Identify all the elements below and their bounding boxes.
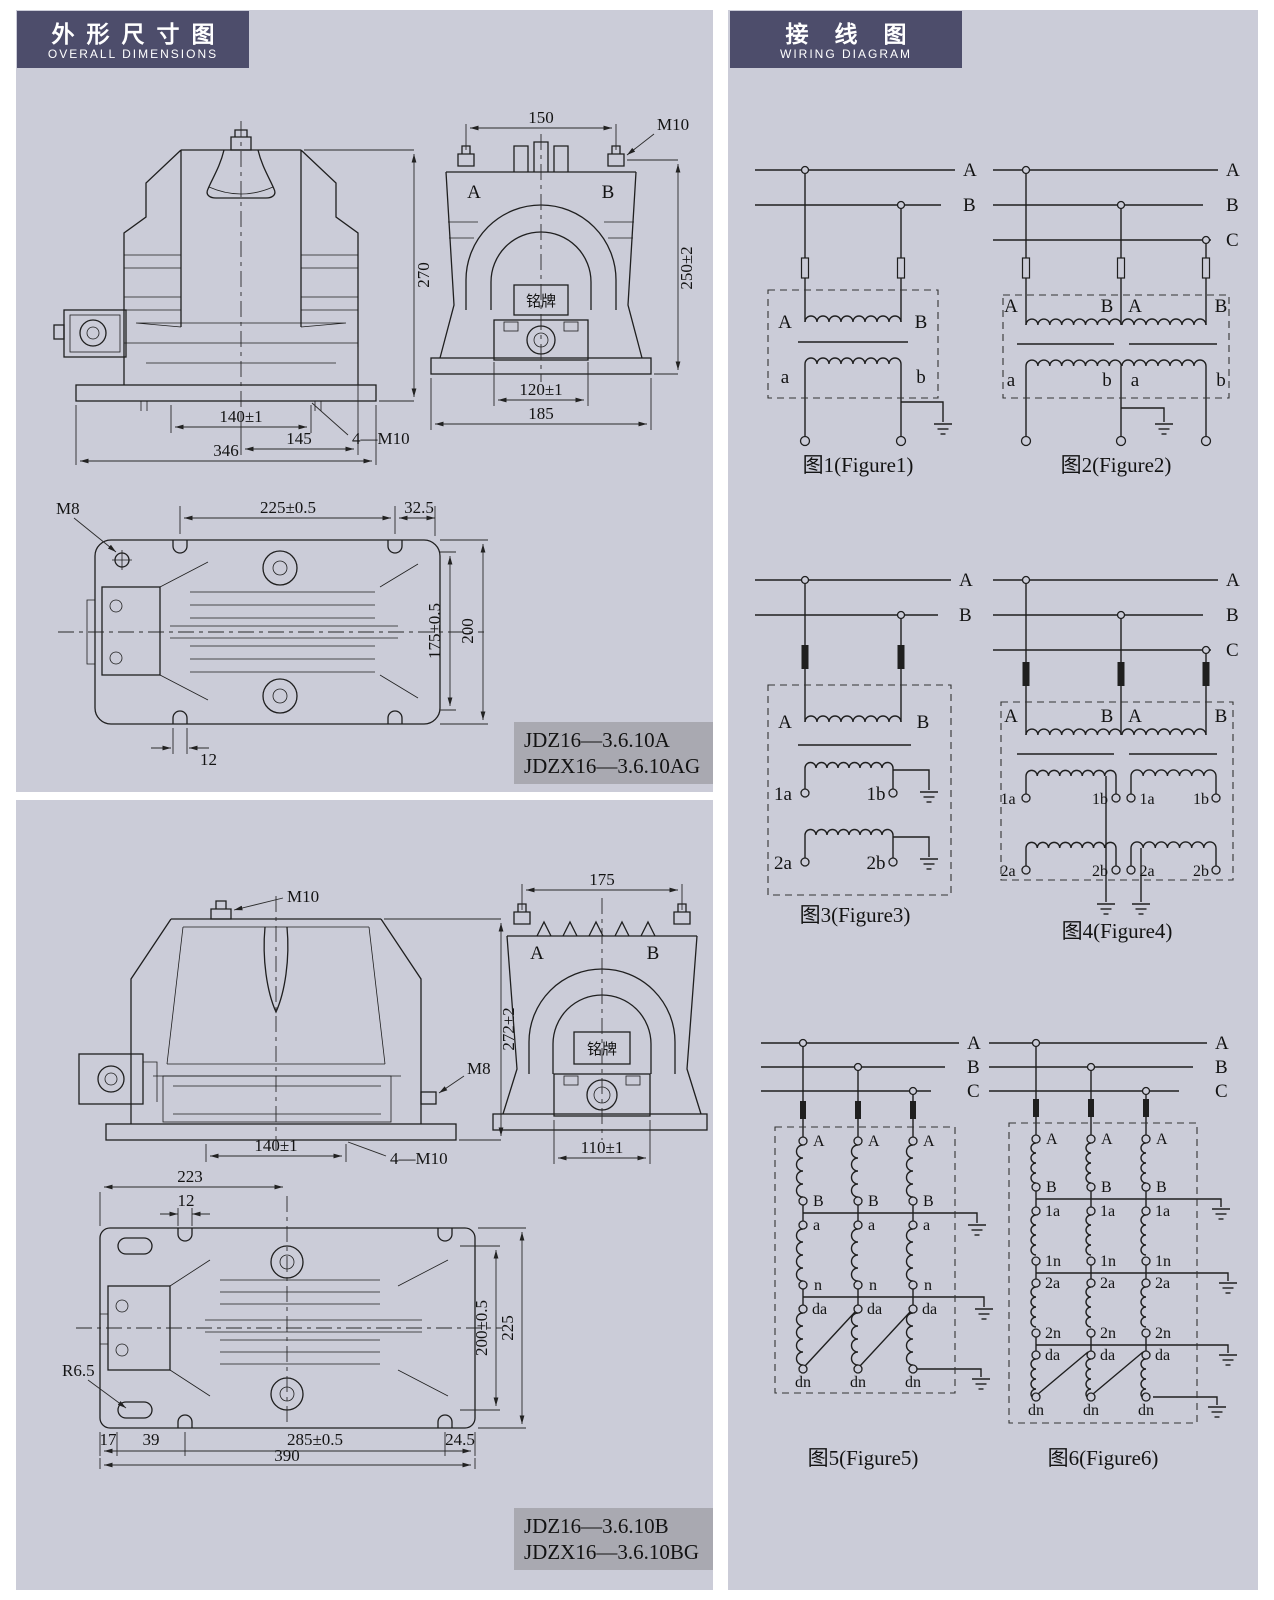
fig1-bus-b: B [963, 195, 976, 216]
fig5-c1-dn: dn [795, 1374, 811, 1391]
fig2-bus-c: C [1226, 230, 1239, 251]
fig6-c2-dn: dn [1083, 1402, 1099, 1419]
fig6-c3-B: B [1156, 1179, 1167, 1196]
terminal-b-label: B [647, 943, 660, 964]
fig4-t1-sec2-b: 2b [1092, 863, 1108, 880]
fig5-c2-da: da [867, 1301, 882, 1318]
fig6-bus-a: A [1215, 1033, 1229, 1054]
dim-bt-223: 223 [177, 1168, 203, 1186]
b-front-view-drawing: M10 M8 272±2 140±1 4—M10 [71, 874, 521, 1169]
b-side-body [493, 904, 707, 1130]
fig5-caption: 图5(Figure5) [808, 1446, 919, 1470]
header-title-en: WIRING DIAGRAM [730, 47, 962, 61]
fig6-bus-b: B [1215, 1057, 1228, 1078]
dim-as-250: 250±2 [677, 246, 696, 289]
dim-bf-4m10: 4—M10 [390, 1149, 448, 1168]
fig6-c1-2a: 2a [1045, 1275, 1060, 1292]
fig5-c2-B: B [868, 1193, 879, 1210]
fig5-c3-A: A [923, 1133, 935, 1150]
header-title-zh: 外形尺寸图 [17, 15, 249, 49]
fig2-caption: 图2(Figure2) [1061, 453, 1172, 477]
dim-bs-175: 175 [589, 874, 615, 889]
wiring-diagram-header: 接线图 WIRING DIAGRAM [730, 11, 962, 68]
terminal-a-label: A [467, 182, 481, 203]
fig4-t1-sec1-a: 1a [1000, 791, 1015, 808]
fig6-c1-2n: 2n [1045, 1325, 1061, 1342]
fig1-primary-a: A [778, 312, 792, 333]
nameplate-label: 铭牌 [587, 1041, 617, 1058]
figure6-wiring: A B C A B 1a 1n 2a 2n da dn A B 1a 1n 2a… [981, 1015, 1253, 1485]
fig6-c1-da: da [1045, 1347, 1060, 1364]
fig6-c1-dn: dn [1028, 1402, 1044, 1419]
fig4-t2-sec1-a: 1a [1139, 791, 1154, 808]
overall-dimensions-header: 外形尺寸图 OVERALL DIMENSIONS [17, 11, 249, 68]
fig6-caption: 图6(Figure6) [1048, 1446, 1159, 1470]
fig6-bus-c: C [1215, 1081, 1228, 1102]
fig6-winding-labels: A B 1a 1n 2a 2n da dn A B 1a 1n 2a 2n da… [1028, 1131, 1171, 1419]
dim-at-m8: M8 [56, 499, 80, 518]
fig6-c2-1a: 1a [1100, 1203, 1115, 1220]
fig5-c3-da: da [922, 1301, 937, 1318]
fig4-t2-primary-b: B [1215, 706, 1228, 727]
fig4-t1-sec1-b: 1b [1092, 791, 1108, 808]
fig6-c3-dn: dn [1138, 1402, 1154, 1419]
fig4-caption: 图4(Figure4) [1062, 919, 1173, 943]
fig4-circuit [993, 580, 1218, 902]
header-title-en: OVERALL DIMENSIONS [17, 47, 249, 61]
dim-bf-140: 140±1 [254, 1136, 297, 1155]
dim-at-225: 225±0.5 [260, 498, 316, 517]
fig6-c1-1n: 1n [1045, 1253, 1061, 1270]
fig2-t1-primary-b: B [1101, 296, 1114, 317]
fig3-primary-b: B [917, 712, 930, 733]
fig6-c3-2n: 2n [1155, 1325, 1171, 1342]
dim-as-150: 150 [528, 110, 554, 127]
fig4-bus-b: B [1226, 605, 1239, 626]
figure1-wiring: A B A B a b 图1(Figure1) [743, 140, 993, 490]
terminal-b-label: B [602, 182, 615, 203]
figure3-wiring: A B A B 1a 1b 2a 2b 图3(Figure3) [743, 550, 993, 945]
dim-at-200: 200 [458, 618, 477, 644]
figure4-wiring: A B C A B A B 1a 1b 1a 1b 2a 2b 2a 2b 图4… [981, 550, 1253, 950]
fig5-c3-dn: dn [905, 1374, 921, 1391]
fig3-sec1-b: 1b [867, 784, 886, 805]
fig5-bus-a: A [967, 1033, 981, 1054]
fig6-c2-2a: 2a [1100, 1275, 1115, 1292]
b-front-dimension-lines [206, 898, 501, 1162]
fig3-bus-a: A [959, 570, 973, 591]
model-a-line1: JDZ16—3.6.10A [524, 727, 707, 753]
fig2-t2-secondary-a: a [1131, 370, 1140, 391]
fig6-c3-da: da [1155, 1347, 1170, 1364]
fig5-c2-a: a [868, 1217, 875, 1234]
model-box-b: JDZ16—3.6.10B JDZX16—3.6.10BG [514, 1508, 713, 1570]
fig4-t2-sec2-a: 2a [1139, 863, 1154, 880]
fig4-t2-sec1-b: 1b [1193, 791, 1209, 808]
fig4-bus-a: A [1226, 570, 1240, 591]
catalog-page: 外形尺寸图 OVERALL DIMENSIONS [0, 0, 1274, 1600]
wiring-diagram-panel: 接线图 WIRING DIAGRAM A B A B a b 图1(Figure… [728, 10, 1258, 1590]
model-a-line2: JDZX16—3.6.10AG [524, 753, 707, 779]
fig6-c1-A: A [1046, 1131, 1058, 1148]
fig5-c2-dn: dn [850, 1374, 866, 1391]
model-box-a: JDZ16—3.6.10A JDZX16—3.6.10AG [514, 722, 713, 784]
figure5-wiring: A B C A B a n da dn A B a n da dn A B a … [743, 1015, 993, 1480]
fig1-primary-b: B [915, 312, 928, 333]
fig6-c2-1n: 1n [1100, 1253, 1116, 1270]
fig4-t1-sec2-a: 2a [1000, 863, 1015, 880]
fig4-bus-c: C [1226, 640, 1239, 661]
dim-as-185: 185 [528, 404, 554, 423]
dim-a-346: 346 [213, 441, 239, 460]
fig6-c3-1a: 1a [1155, 1203, 1170, 1220]
fig6-c3-2a: 2a [1155, 1275, 1170, 1292]
fig5-c1-a: a [813, 1217, 820, 1234]
figure2-wiring: A B C A B A B a b a b 图2(Figure2) [981, 140, 1253, 490]
fig3-caption: 图3(Figure3) [800, 903, 911, 927]
model-b-line1: JDZ16—3.6.10B [524, 1513, 707, 1539]
fig2-t2-primary-b: B [1215, 296, 1228, 317]
fig5-c2-A: A [868, 1133, 880, 1150]
a-side-view-drawing: 150 M10 A B 铭牌 250±2 120±1 185 [426, 110, 706, 455]
fig5-c3-B: B [923, 1193, 934, 1210]
fig3-sec1-a: 1a [774, 784, 793, 805]
dim-a-hole-span: 140±1 [219, 407, 262, 426]
model-b-line2: JDZX16—3.6.10BG [524, 1539, 707, 1565]
fig5-c1-da: da [812, 1301, 827, 1318]
dim-bt-225: 225 [498, 1315, 517, 1341]
fig3-primary-a: A [778, 712, 792, 733]
fig5-c1-B: B [813, 1193, 824, 1210]
fig5-c3-n: n [924, 1277, 932, 1294]
fig5-circuit [761, 1043, 984, 1377]
fig1-caption: 图1(Figure1) [803, 453, 914, 477]
dim-bs-110: 110±1 [581, 1138, 624, 1157]
header-title-zh: 接线图 [730, 15, 962, 49]
dim-at-175: 175±0.5 [425, 603, 444, 659]
fig2-bus-a: A [1226, 160, 1240, 181]
fig4-t1-primary-a: A [1004, 706, 1018, 727]
b-front-body [79, 901, 456, 1140]
fig3-sec2-a: 2a [774, 853, 793, 874]
fig1-circuit [755, 170, 955, 436]
dim-as-120: 120±1 [519, 380, 562, 399]
overall-dimensions-panel-b: M10 M8 272±2 140±1 4—M10 175 A B 铭牌 [16, 800, 713, 1590]
fig2-t2-primary-a: A [1128, 296, 1142, 317]
fig6-c3-A: A [1156, 1131, 1168, 1148]
fig6-c1-B: B [1046, 1179, 1057, 1196]
fig1-secondary-b: b [916, 367, 926, 388]
fig3-sec2-b: 2b [867, 853, 886, 874]
terminal-a-label: A [530, 943, 544, 964]
fig6-c2-2n: 2n [1100, 1325, 1116, 1342]
dim-a-145: 145 [286, 429, 312, 448]
dim-at-12: 12 [200, 750, 217, 769]
dim-bt-245: 24.5 [445, 1430, 475, 1449]
dim-bt-r65: R6.5 [62, 1361, 95, 1380]
fig5-c2-n: n [869, 1277, 877, 1294]
dim-as-m10: M10 [657, 115, 689, 134]
dim-at-325: 32.5 [404, 498, 434, 517]
fig5-c1-A: A [813, 1133, 825, 1150]
fig2-bus-b: B [1226, 195, 1239, 216]
dim-bt-200: 200±0.5 [472, 1300, 491, 1356]
fig4-t2-primary-a: A [1128, 706, 1142, 727]
dim-bf-m10: M10 [287, 887, 319, 906]
fig5-bus-b: B [967, 1057, 980, 1078]
fig6-c1-1a: 1a [1045, 1203, 1060, 1220]
fig5-winding-labels: A B a n da dn A B a n da dn A B a n da d… [795, 1133, 937, 1391]
fig1-bus-a: A [963, 160, 977, 181]
fig2-t1-primary-a: A [1004, 296, 1018, 317]
dim-bt-17: 17 [100, 1430, 118, 1449]
fig2-t2-secondary-b: b [1216, 370, 1226, 391]
b-top-view-drawing: 223 12 R6.5 200±0.5 225 17 39 285±0.5 24… [60, 1168, 540, 1472]
fig5-c3-a: a [923, 1217, 930, 1234]
fig3-bus-b: B [959, 605, 972, 626]
overall-dimensions-panel-a: 外形尺寸图 OVERALL DIMENSIONS [16, 10, 713, 792]
fig2-t1-secondary-a: a [1007, 370, 1016, 391]
a-front-view-drawing: 270 140±1 4—M10 145 346 [46, 105, 446, 465]
nameplate-label: 铭牌 [526, 293, 556, 310]
fig6-c2-A: A [1101, 1131, 1113, 1148]
fig5-bus-c: C [967, 1081, 980, 1102]
fig4-t2-sec2-b: 2b [1193, 863, 1209, 880]
a-front-body [54, 130, 376, 411]
dim-bt-390: 390 [274, 1446, 300, 1465]
fig2-t1-secondary-b: b [1102, 370, 1112, 391]
dim-bt-12: 12 [178, 1191, 195, 1210]
dim-a-bolt-callout: 4—M10 [352, 429, 410, 448]
a-top-view-drawing: M8 225±0.5 32.5 175±0.5 200 12 [40, 492, 500, 770]
fig6-c2-da: da [1100, 1347, 1115, 1364]
fig6-c3-1n: 1n [1155, 1253, 1171, 1270]
b-side-view-drawing: 175 A B 铭牌 110±1 [477, 874, 713, 1174]
fig6-c2-B: B [1101, 1179, 1112, 1196]
fig1-secondary-a: a [781, 367, 790, 388]
fig5-c1-n: n [814, 1277, 822, 1294]
dim-bt-39: 39 [143, 1430, 160, 1449]
fig4-t1-primary-b: B [1101, 706, 1114, 727]
